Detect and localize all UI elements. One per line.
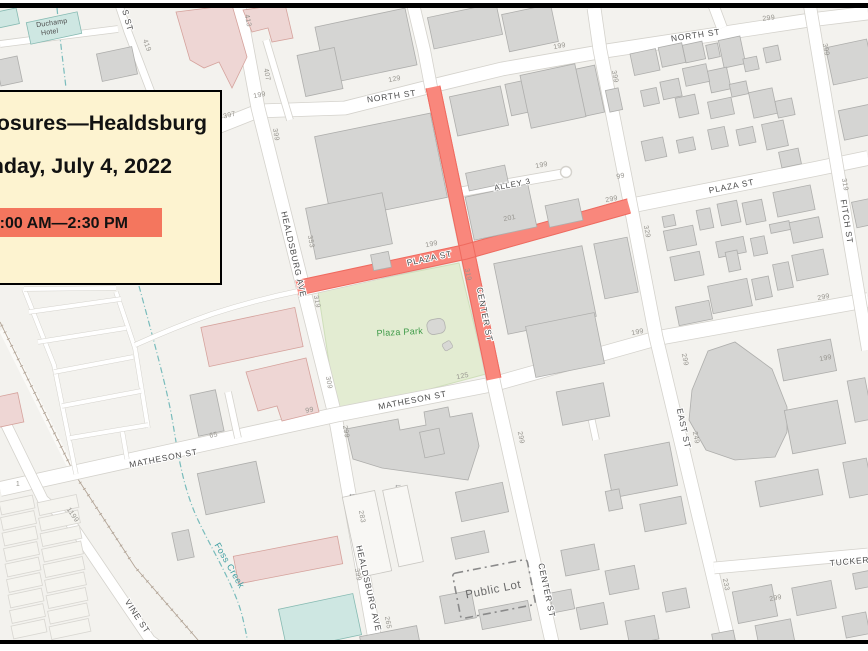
svg-text:1: 1	[16, 481, 20, 488]
